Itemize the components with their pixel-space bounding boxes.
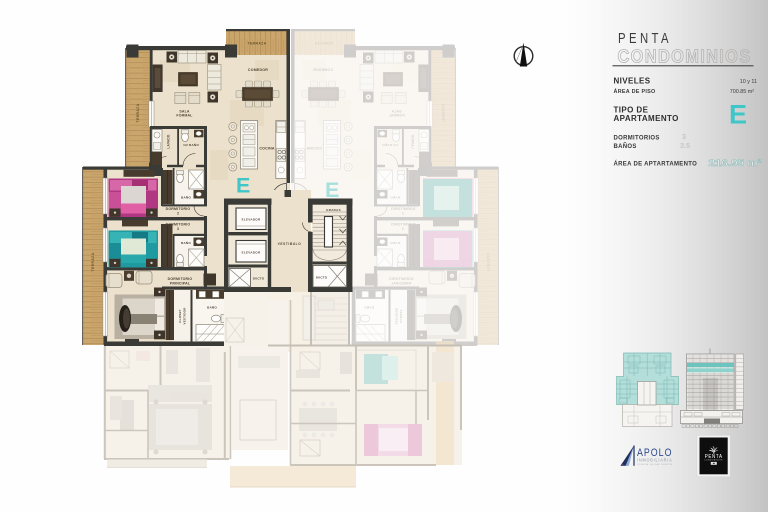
svg-text:3.5: 3.5 — [680, 141, 690, 150]
svg-text:BAÑOS: BAÑOS — [614, 143, 637, 150]
svg-text:DORMITORIOS: DORMITORIOS — [614, 136, 660, 142]
svg-text:ÁREA DE APTARTAMENTO: ÁREA DE APTARTAMENTO — [614, 160, 698, 167]
svg-text:PRIMERA CALIDAD SIEMPRE: PRIMERA CALIDAD SIEMPRE — [637, 463, 673, 466]
svg-text:E: E — [729, 100, 747, 130]
svg-text:10 y 11: 10 y 11 — [740, 79, 757, 85]
svg-text:GRADAS: GRADAS — [326, 208, 341, 212]
svg-text:ÁREA DE PISO: ÁREA DE PISO — [614, 88, 656, 95]
svg-text:PENTA: PENTA — [618, 30, 672, 47]
svg-text:DUCTO: DUCTO — [253, 277, 265, 281]
svg-text:3: 3 — [682, 132, 686, 141]
svg-text:700.85 m²: 700.85 m² — [730, 89, 754, 95]
svg-text:E: E — [236, 174, 250, 198]
svg-text:NIVELES: NIVELES — [614, 76, 651, 85]
svg-text:ELEVADOR: ELEVADOR — [242, 250, 261, 254]
svg-text:CONDOMINIOS: CONDOMINIOS — [704, 460, 723, 462]
svg-text:ELEVADOR: ELEVADOR — [242, 217, 261, 221]
svg-text:VESTIBULO: VESTIBULO — [278, 242, 302, 246]
svg-text:E: E — [325, 178, 339, 202]
svg-text:APARTAMENTO: APARTAMENTO — [614, 114, 679, 123]
svg-text:216.95 m²: 216.95 m² — [709, 158, 762, 168]
svg-text:DUCTO: DUCTO — [316, 276, 328, 280]
svg-text:CONDOMINIOS: CONDOMINIOS — [618, 46, 752, 67]
svg-text:INMOBILIARIA: INMOBILIARIA — [637, 458, 673, 463]
